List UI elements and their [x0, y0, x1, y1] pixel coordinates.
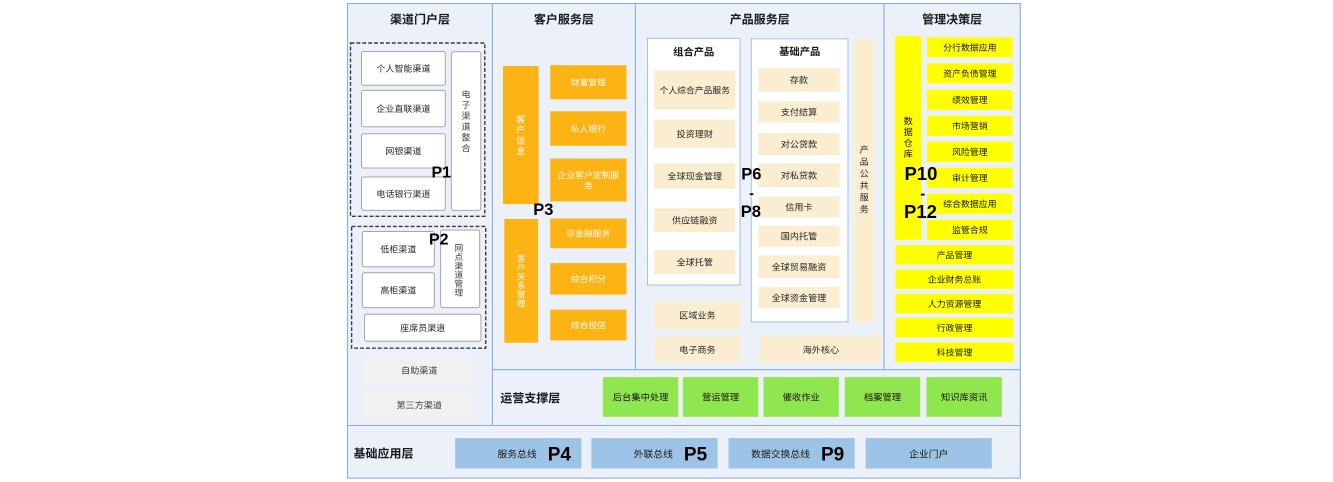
svg-text:P10: P10 — [904, 163, 937, 184]
svg-text:P6: P6 — [741, 165, 761, 183]
svg-text:P4: P4 — [548, 445, 572, 466]
svg-text:P12: P12 — [904, 201, 937, 222]
svg-text:P3: P3 — [533, 201, 553, 219]
svg-text:P9: P9 — [821, 445, 844, 466]
svg-text:-: - — [749, 185, 754, 201]
svg-text:P8: P8 — [741, 203, 761, 221]
svg-text:P2: P2 — [429, 232, 449, 249]
svg-text:P5: P5 — [684, 445, 708, 466]
svg-text:P1: P1 — [432, 165, 452, 182]
